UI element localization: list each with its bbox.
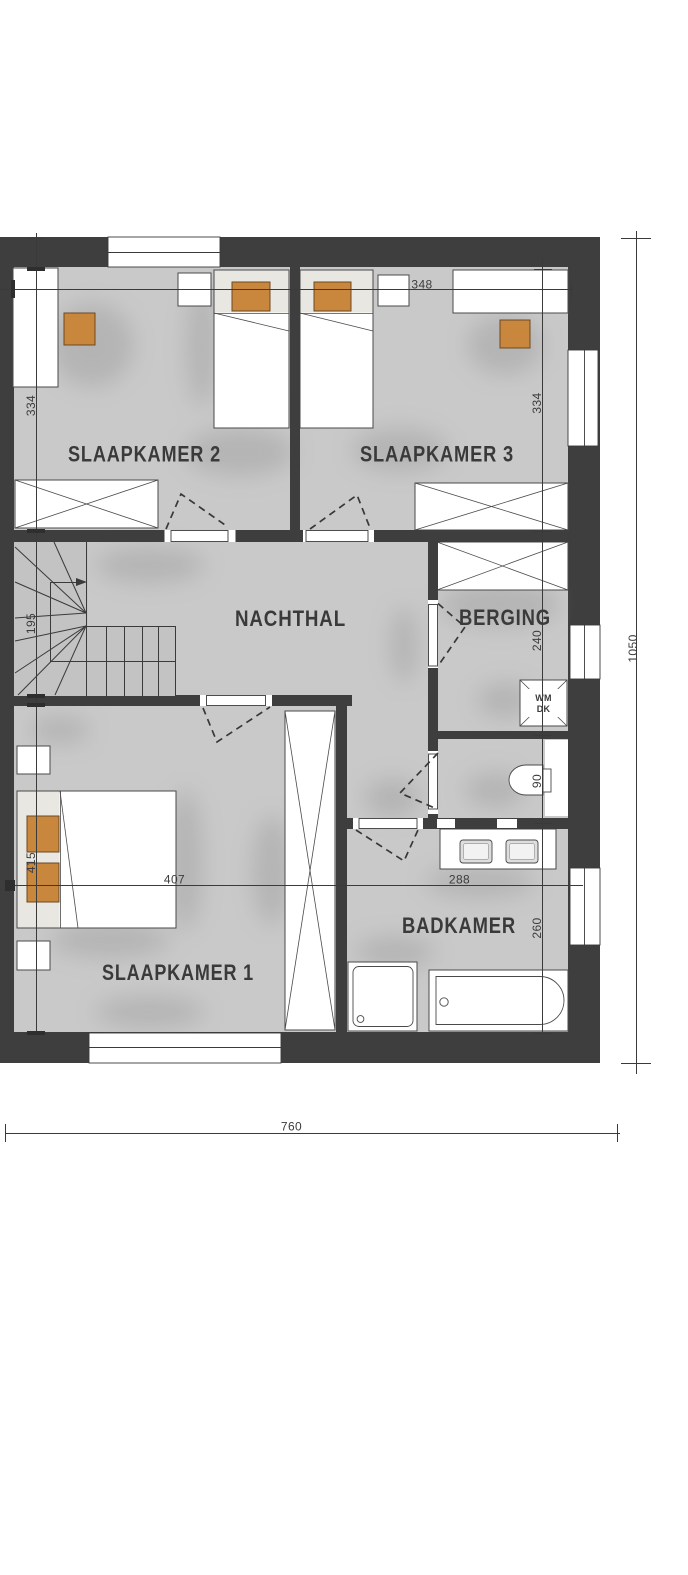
svg-text:334: 334 [530,392,544,413]
svg-text:DK: DK [537,704,551,714]
svg-text:334: 334 [24,395,38,416]
svg-text:760: 760 [281,1120,302,1134]
svg-text:348: 348 [411,278,432,292]
svg-text:240: 240 [530,630,544,651]
svg-text:288: 288 [449,873,470,887]
svg-text:260: 260 [530,917,544,938]
svg-text:BADKAMER: BADKAMER [402,913,516,938]
svg-text:SLAAPKAMER 1: SLAAPKAMER 1 [102,960,254,985]
svg-text:90: 90 [530,774,544,788]
svg-text:407: 407 [164,873,185,887]
svg-text:SLAAPKAMER 2: SLAAPKAMER 2 [68,442,221,467]
svg-text:SLAAPKAMER 3: SLAAPKAMER 3 [360,442,514,467]
svg-text:415: 415 [24,852,38,873]
svg-text:WM: WM [535,693,552,703]
svg-text:195: 195 [24,613,38,634]
svg-text:BERGING: BERGING [459,605,551,630]
svg-text:NACHTHAL: NACHTHAL [235,606,346,631]
svg-text:1050: 1050 [626,634,640,662]
